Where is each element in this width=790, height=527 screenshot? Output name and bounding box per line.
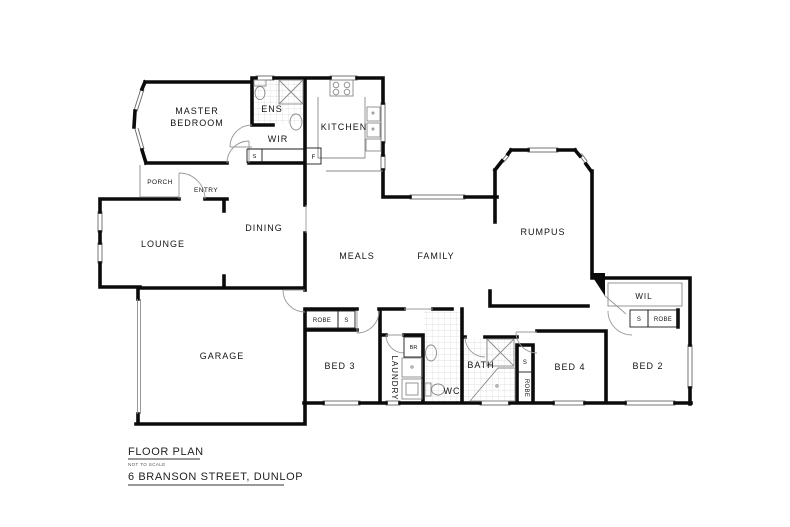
floor-plan-page: MASTER BEDROOM ENS WIR KITCHEN PORCH ENT… xyxy=(0,0,790,527)
room-label-meals: MEALS xyxy=(339,251,375,261)
robe-bed3-label: ROBE xyxy=(313,318,331,324)
room-label-rumpus: RUMPUS xyxy=(520,227,565,237)
broom-cupboard-label: BR xyxy=(410,345,418,351)
room-label-porch: PORCH xyxy=(147,179,172,186)
fridge-label: F xyxy=(312,155,316,161)
room-label-dining: DINING xyxy=(245,223,283,233)
room-label-bed3: BED 3 xyxy=(324,361,355,371)
room-label-wir: WIR xyxy=(268,134,289,144)
plan-address: 6 BRANSON STREET, DUNLOP xyxy=(128,471,303,483)
room-label-wil: WIL xyxy=(635,292,652,301)
floor-plan-svg: MASTER BEDROOM ENS WIR KITCHEN PORCH ENT… xyxy=(0,0,790,527)
robe-bath-strip-label: ROBE xyxy=(523,379,529,397)
room-label-bed2: BED 2 xyxy=(632,361,663,371)
robe-bed2-label: ROBE xyxy=(654,317,672,323)
room-label-lounge: LOUNGE xyxy=(141,239,185,249)
room-label-master-line2: BEDROOM xyxy=(170,118,224,128)
s-bath-strip-label: S xyxy=(523,360,527,366)
room-labels: MASTER BEDROOM ENS WIR KITCHEN PORCH ENT… xyxy=(141,104,664,401)
room-label-family: FAMILY xyxy=(417,251,454,261)
s-cupboard-wir-label: S xyxy=(253,154,257,160)
room-label-entry: ENTRY xyxy=(194,187,218,194)
room-label-kitchen: KITCHEN xyxy=(321,122,368,132)
room-label-bed4: BED 4 xyxy=(554,362,585,372)
room-label-wc: WC xyxy=(444,386,461,396)
room-label-laundry: LAUNDRY xyxy=(390,355,399,400)
s-bed2-label: S xyxy=(637,317,641,323)
footer: FLOOR PLAN NOT TO SCALE 6 BRANSON STREET… xyxy=(128,446,303,485)
room-label-master-line1: MASTER xyxy=(175,106,219,116)
plan-title: FLOOR PLAN xyxy=(128,446,204,458)
plan-subtitle: NOT TO SCALE xyxy=(128,462,166,467)
room-label-ens: ENS xyxy=(261,104,283,114)
room-label-garage: GARAGE xyxy=(200,351,245,361)
fixtures xyxy=(138,80,683,414)
room-label-bath: BATH xyxy=(467,360,494,370)
s-bed3-label: S xyxy=(344,318,348,324)
